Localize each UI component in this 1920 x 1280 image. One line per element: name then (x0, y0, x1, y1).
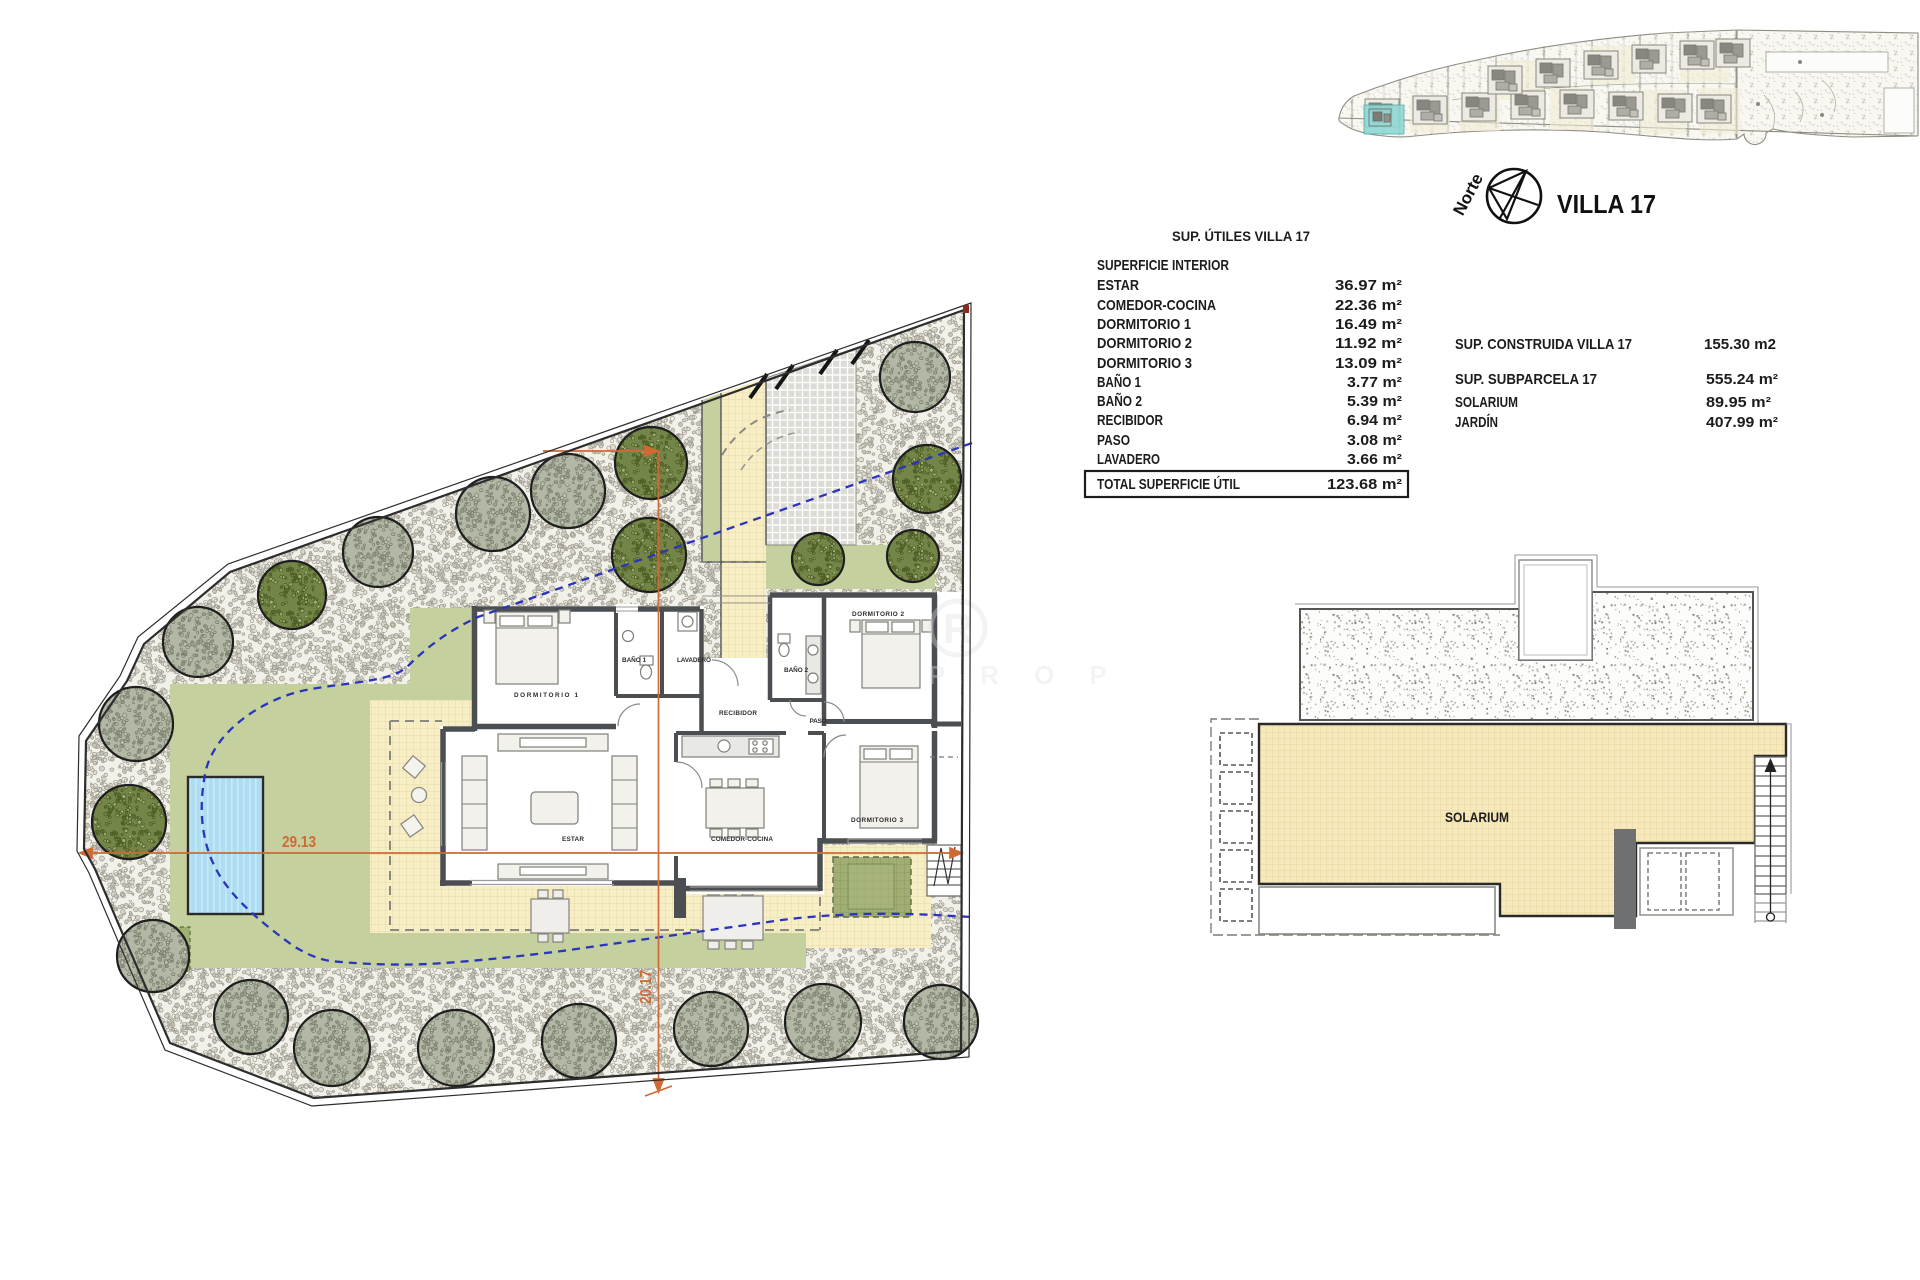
svg-text:LAVADERO: LAVADERO (677, 657, 711, 664)
svg-text:BAÑO 2: BAÑO 2 (1097, 392, 1142, 410)
svg-text:PASO: PASO (810, 718, 827, 725)
svg-text:155.30 m2: 155.30 m2 (1704, 337, 1776, 353)
svg-text:Norte: Norte (1449, 170, 1487, 218)
svg-text:DORMITORIO 2: DORMITORIO 2 (1097, 336, 1192, 352)
svg-text:JARDÍN: JARDÍN (1455, 414, 1498, 431)
svg-text:SUP. ÚTILES VILLA 17: SUP. ÚTILES VILLA 17 (1172, 229, 1310, 244)
svg-text:29.13: 29.13 (282, 834, 316, 851)
svg-text:SOLARIUM: SOLARIUM (1455, 395, 1518, 411)
svg-text:20.17: 20.17 (638, 970, 655, 1004)
svg-text:SUP. CONSTRUIDA VILLA 17: SUP. CONSTRUIDA VILLA 17 (1455, 337, 1632, 353)
svg-text:16.49 m²: 16.49 m² (1335, 317, 1402, 333)
svg-text:BAÑO 1: BAÑO 1 (622, 655, 646, 664)
svg-text:TOTAL SUPERFICIE ÚTIL: TOTAL SUPERFICIE ÚTIL (1097, 475, 1240, 493)
svg-text:P R O P: P R O P (928, 660, 1121, 690)
svg-text:RECIBIDOR: RECIBIDOR (1097, 413, 1163, 429)
svg-text:6.94 m²: 6.94 m² (1347, 413, 1402, 429)
svg-text:36.97 m²: 36.97 m² (1335, 278, 1402, 294)
svg-text:13.09 m²: 13.09 m² (1335, 356, 1402, 372)
svg-text:COMEDOR-COCINA: COMEDOR-COCINA (711, 836, 773, 843)
svg-text:SUPERFICIE INTERIOR: SUPERFICIE INTERIOR (1097, 258, 1229, 274)
svg-text:ESTAR: ESTAR (1097, 278, 1139, 294)
svg-text:11.92 m²: 11.92 m² (1335, 336, 1402, 352)
svg-text:DORMITORIO 2: DORMITORIO 2 (852, 611, 904, 618)
svg-text:ESTAR: ESTAR (562, 836, 584, 843)
svg-text:SUP. SUBPARCELA 17: SUP. SUBPARCELA 17 (1455, 372, 1597, 388)
svg-text:VILLA 17: VILLA 17 (1557, 189, 1656, 219)
svg-text:RECIBIDOR: RECIBIDOR (719, 710, 757, 717)
svg-text:BAÑO 1: BAÑO 1 (1097, 373, 1141, 391)
svg-text:DORMITORIO 3: DORMITORIO 3 (851, 817, 903, 824)
svg-text:407.99 m²: 407.99 m² (1706, 415, 1778, 431)
svg-text:5.39 m²: 5.39 m² (1347, 394, 1402, 410)
svg-text:BAÑO 2: BAÑO 2 (784, 665, 808, 674)
svg-text:DORMITORIO 3: DORMITORIO 3 (1097, 356, 1192, 372)
svg-text:3.77 m²: 3.77 m² (1347, 375, 1402, 391)
svg-text:DORMITORIO 1: DORMITORIO 1 (514, 692, 578, 699)
svg-text:89.95 m²: 89.95 m² (1706, 395, 1771, 411)
svg-text:22.36 m²: 22.36 m² (1335, 298, 1402, 314)
svg-text:3.66 m²: 3.66 m² (1347, 452, 1402, 468)
svg-text:COMEDOR-COCINA: COMEDOR-COCINA (1097, 298, 1216, 314)
svg-text:123.68 m²: 123.68 m² (1327, 477, 1402, 493)
svg-text:DORMITORIO 1: DORMITORIO 1 (1097, 317, 1191, 333)
svg-text:R: R (943, 605, 973, 652)
svg-text:LAVADERO: LAVADERO (1097, 452, 1160, 468)
svg-text:SOLARIUM: SOLARIUM (1445, 810, 1509, 825)
svg-text:555.24 m²: 555.24 m² (1706, 372, 1778, 388)
svg-text:3.08 m²: 3.08 m² (1347, 433, 1402, 449)
svg-text:PASO: PASO (1097, 433, 1130, 449)
